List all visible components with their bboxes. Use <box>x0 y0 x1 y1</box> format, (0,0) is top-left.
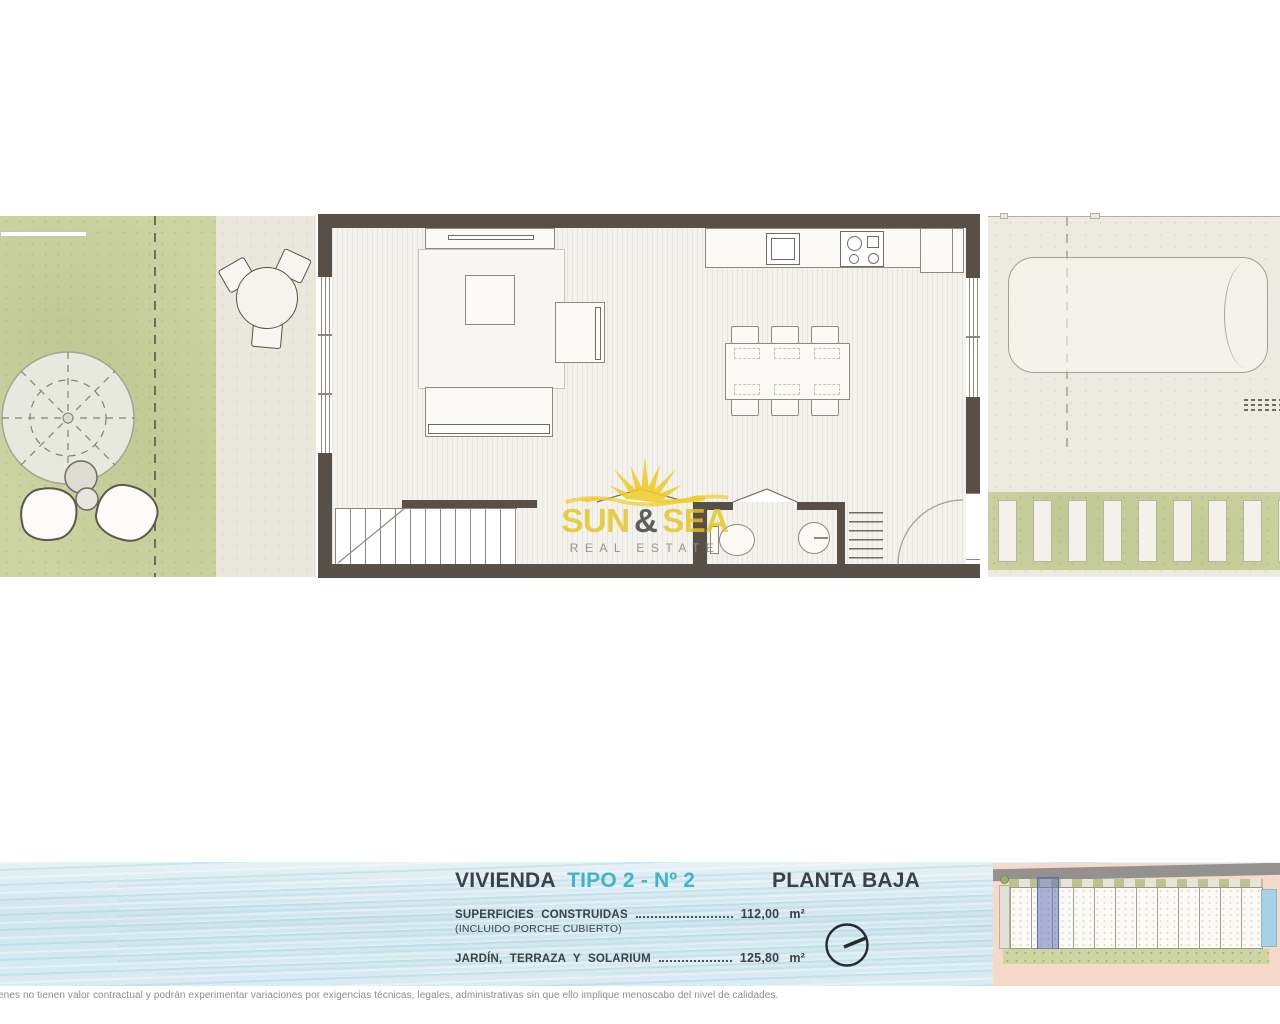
site-garden-strip <box>1003 949 1269 964</box>
stepping-stone <box>998 500 1017 562</box>
parasol-icon <box>0 340 180 570</box>
stepping-stone <box>1103 500 1122 562</box>
site-plan-thumbnail <box>993 863 1280 986</box>
surface-value: 125,80 <box>740 951 779 965</box>
brand-wordmark: SUN & SEA REAL ESTATE <box>545 502 745 555</box>
stepping-stone <box>1173 500 1192 562</box>
surface-note: (INCLUIDO PORCHE CUBIERTO) <box>455 923 622 935</box>
surface-label: JARDÍN, TERRAZA Y SOLARIUM <box>455 953 651 965</box>
unit-type-label: VIVIENDA <box>455 869 555 892</box>
surface-unit: m² <box>789 951 805 965</box>
entrance-door-swing-arc <box>898 500 963 565</box>
unit-type-accent: TIPO 2 - Nº 2 <box>567 869 695 892</box>
brand-watermark: SUN & SEA REAL ESTATE <box>545 450 745 578</box>
sun-icon <box>555 450 735 508</box>
surface-value: 112,00 <box>741 907 780 921</box>
surface-row-built: SUPERFICIES CONSTRUIDAS 112,00 m² <box>455 907 805 921</box>
brand-ampersand: & <box>634 502 658 539</box>
disclaimer-text: enes no tienen valor contractual y podrá… <box>0 990 778 1001</box>
stepping-stone <box>1138 500 1157 562</box>
drain-grille <box>1244 404 1280 406</box>
compass-icon <box>824 922 870 968</box>
paving-joint-notch <box>1090 213 1100 219</box>
floor-plan-sheet: SUN & SEA REAL ESTATE VIVIENDA TIPO 2 - … <box>0 0 1280 1024</box>
site-side-path <box>999 885 1010 949</box>
brand-word-sun: SUN <box>561 502 629 539</box>
site-tree <box>1000 875 1009 884</box>
drain-grille <box>1244 409 1280 411</box>
surface-label: SUPERFICIES CONSTRUIDAS <box>455 909 628 921</box>
dotted-leader <box>659 960 732 962</box>
surface-unit: m² <box>789 907 805 921</box>
terrace-table <box>236 267 298 329</box>
car-windshield-line <box>1224 262 1262 368</box>
walkway-green-strip <box>988 492 1280 570</box>
dotted-leader <box>636 916 733 918</box>
garden-edge-marker <box>0 231 87 237</box>
floor-label: PLANTA BAJA <box>772 869 920 893</box>
sheet-title: VIVIENDA TIPO 2 - Nº 2 <box>455 869 695 893</box>
stepping-stone <box>1243 500 1262 562</box>
drain-grille <box>1244 399 1280 401</box>
stepping-stone <box>1033 500 1052 562</box>
brand-word-sea: SEA <box>662 502 728 539</box>
paving-joint-notch <box>1000 213 1008 219</box>
surface-row-garden: JARDÍN, TERRAZA Y SOLARIUM 125,80 m² <box>455 951 805 965</box>
stepping-stone <box>1068 500 1087 562</box>
stepping-stone <box>1208 500 1227 562</box>
brand-tagline: REAL ESTATE <box>545 541 745 555</box>
site-pool <box>1261 889 1277 947</box>
